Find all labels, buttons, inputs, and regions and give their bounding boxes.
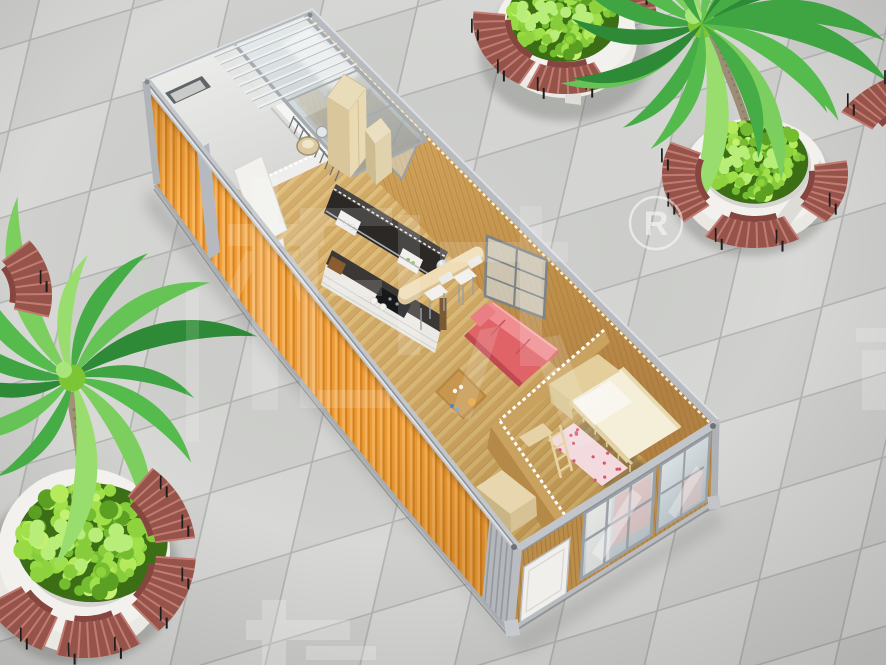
svg-text:R: R <box>644 205 669 243</box>
